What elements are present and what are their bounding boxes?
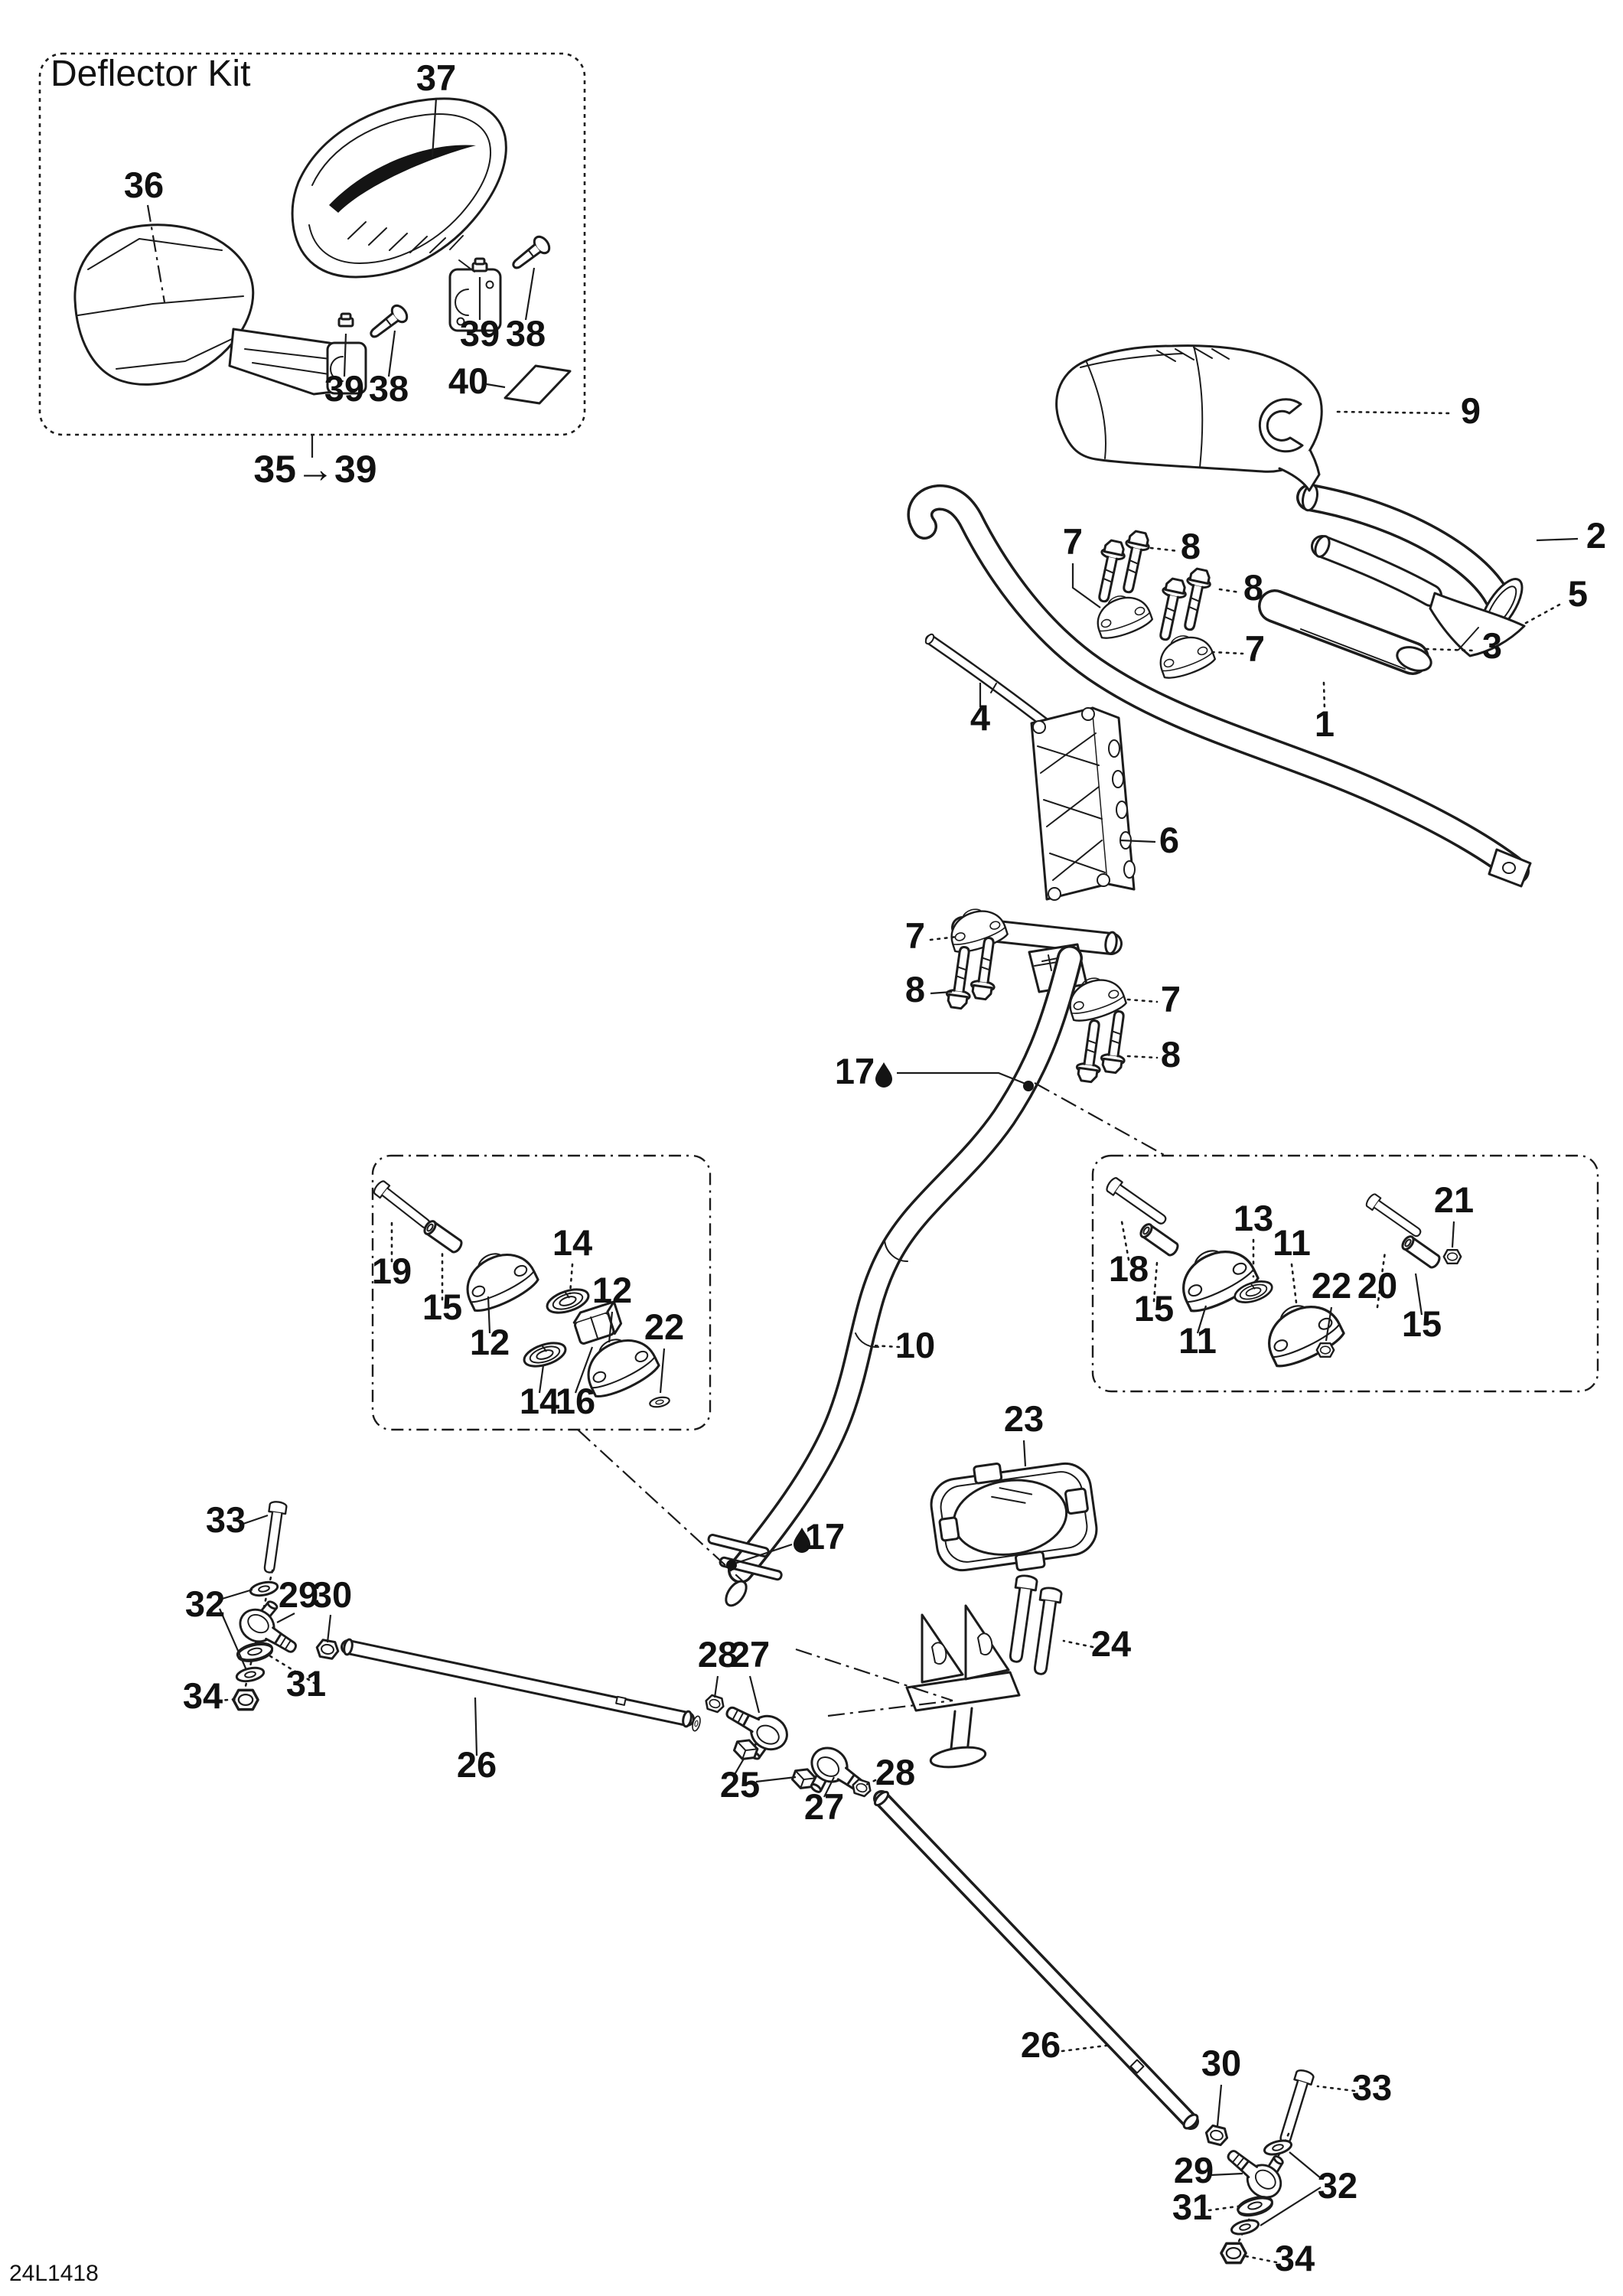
part-callout-5: 5	[1568, 573, 1588, 614]
part-callout-7-top-right: 7	[1245, 628, 1265, 669]
part-callout-39-left: 39	[324, 368, 364, 409]
part-callout-15-c: 15	[1402, 1303, 1442, 1344]
part-callout-17-lower: 17	[805, 1516, 845, 1557]
part-callout-8-mid-right: 8	[1161, 1034, 1181, 1075]
part-callout-27-b: 27	[804, 1786, 844, 1827]
riser-clamp-left	[944, 902, 1009, 956]
part-callout-26-right: 26	[1021, 2024, 1061, 2065]
part-callout-25: 25	[720, 1764, 760, 1805]
part-callout-31-bottom-left: 31	[286, 1663, 326, 1704]
part-callout-29-bottom-right: 29	[1174, 2150, 1214, 2190]
callouts-layer: 3736393839384092531788746787817101915121…	[124, 57, 1606, 2278]
steering-cover	[927, 1451, 1101, 1581]
part-callout-28-b: 28	[875, 1752, 915, 1792]
part-callout-12-a: 12	[470, 1322, 510, 1362]
part-callout-7-mid-right: 7	[1161, 979, 1181, 1019]
part-callout-33-bottom-left: 33	[206, 1499, 246, 1540]
figure-code: 24L1418	[9, 2261, 99, 2286]
part-callout-23: 23	[1004, 1398, 1044, 1439]
parts-diagram-page: Deflector Kit 35→39 24L1418 373639383938…	[0, 0, 1623, 2296]
inset-title: Deflector Kit	[51, 54, 250, 94]
tie-rod-right	[873, 1790, 1200, 2131]
part-callout-32-bottom-right: 32	[1318, 2165, 1357, 2206]
part-callout-38-right: 38	[506, 313, 546, 354]
grip	[1275, 606, 1434, 675]
part-callout-19: 19	[372, 1251, 412, 1291]
part-callout-24: 24	[1091, 1623, 1131, 1664]
part-callout-13: 13	[1234, 1198, 1273, 1238]
part-callout-12-b: 12	[592, 1270, 632, 1310]
part-callout-20: 20	[1357, 1265, 1397, 1306]
part-callout-11-b: 11	[1273, 1222, 1311, 1263]
part-callout-17-upper: 17	[835, 1051, 875, 1091]
part-callout-2: 2	[1586, 515, 1606, 556]
part-callout-22-a: 22	[644, 1306, 684, 1347]
handlebar-pad	[1057, 346, 1322, 491]
part-callout-31-bottom-right: 31	[1172, 2187, 1212, 2227]
part-callout-39-right: 39	[460, 313, 500, 354]
part-callout-34-bottom-left: 34	[183, 1675, 223, 1716]
part-callout-16: 16	[556, 1381, 595, 1421]
bracket-bolts	[1005, 1574, 1062, 1675]
part-callout-30-bottom-left: 30	[312, 1574, 352, 1615]
part-callout-30-bottom-right: 30	[1201, 2043, 1241, 2083]
leader-lines	[218, 98, 1578, 2262]
handguard-right	[292, 99, 506, 331]
part-callout-40: 40	[448, 360, 488, 401]
inset-range-label: 35→39	[253, 448, 376, 491]
part-callout-15-a: 15	[422, 1287, 462, 1327]
part-callout-33-bottom-right: 33	[1352, 2067, 1392, 2108]
part-callout-34-bottom-right: 34	[1275, 2238, 1315, 2278]
part-callout-21: 21	[1434, 1179, 1474, 1220]
adhesive-strip	[505, 366, 570, 403]
part-callout-18: 18	[1109, 1248, 1149, 1289]
part-callout-37: 37	[416, 57, 456, 98]
tie-rod-left	[343, 1639, 702, 1732]
riser-block	[1031, 708, 1135, 900]
part-callout-7-top-left: 7	[1063, 521, 1083, 562]
part-callout-15-b: 15	[1134, 1288, 1174, 1329]
part-callout-14-a: 14	[552, 1222, 592, 1263]
part-callout-14-b: 14	[520, 1381, 559, 1421]
part-callout-1: 1	[1315, 703, 1335, 744]
part-callout-8-top-left: 8	[1181, 526, 1201, 566]
part-callout-8-top-right: 8	[1243, 567, 1263, 608]
part-callout-8-mid-left: 8	[905, 969, 925, 1009]
part-callout-27-a: 27	[730, 1634, 770, 1675]
part-callout-6: 6	[1159, 820, 1179, 860]
part-callout-9: 9	[1461, 390, 1481, 431]
part-callout-36: 36	[124, 165, 164, 205]
part-callout-32-bottom-left: 32	[185, 1583, 225, 1624]
part-callout-7-mid-left: 7	[905, 915, 925, 956]
part-callout-3: 3	[1482, 625, 1502, 666]
steering-arm-bracket	[907, 1606, 1019, 1770]
part-callout-38-left: 38	[369, 368, 409, 409]
part-callout-11-a: 11	[1178, 1320, 1217, 1361]
part-callout-10: 10	[895, 1325, 935, 1365]
part-callout-4: 4	[970, 697, 990, 738]
part-callout-26-left: 26	[457, 1744, 497, 1785]
part-callout-22-b: 22	[1312, 1265, 1351, 1306]
